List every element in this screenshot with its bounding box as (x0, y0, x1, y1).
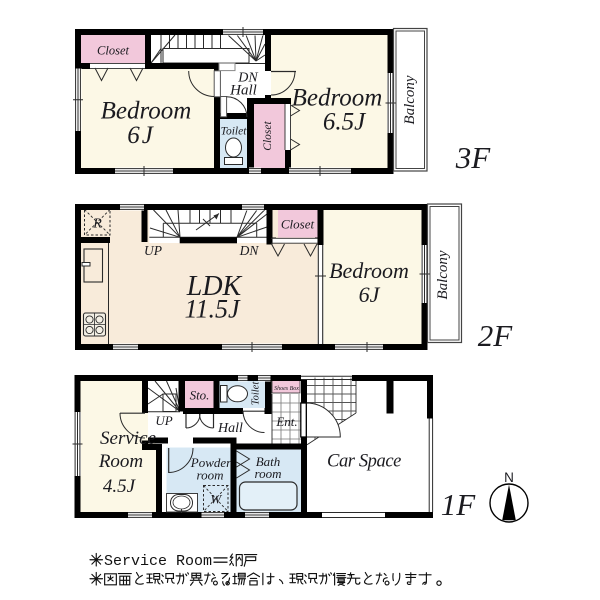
svg-text:2F: 2F (478, 318, 514, 353)
svg-text:3F: 3F (455, 140, 492, 175)
svg-text:Bedroom: Bedroom (292, 85, 383, 112)
svg-text:room: room (255, 466, 282, 481)
svg-text:Toilet: Toilet (251, 381, 262, 406)
svg-text:UP: UP (155, 413, 172, 428)
svg-text:Closet: Closet (97, 44, 129, 58)
svg-text:6J: 6J (359, 282, 381, 307)
svg-text:Hall: Hall (229, 83, 257, 99)
svg-text:Shoes Box: Shoes Box (274, 386, 299, 392)
svg-text:W: W (210, 492, 222, 507)
svg-text:Sto.: Sto. (190, 388, 210, 403)
svg-text:6J: 6J (127, 122, 155, 149)
svg-text:Car Space: Car Space (327, 452, 401, 472)
svg-text:Balcony: Balcony (435, 250, 451, 299)
svg-text:6.5J: 6.5J (323, 109, 367, 136)
svg-text:R: R (92, 217, 102, 232)
svg-text:N: N (504, 470, 514, 485)
svg-text:Bedroom: Bedroom (101, 98, 192, 125)
svg-text:Service: Service (100, 428, 156, 449)
svg-text:Hall: Hall (217, 421, 243, 436)
svg-text:11.5J: 11.5J (184, 295, 241, 324)
svg-text:Balcony: Balcony (402, 75, 418, 124)
svg-text:Closet: Closet (262, 121, 274, 151)
svg-text:4.5J: 4.5J (103, 476, 137, 497)
svg-text:Toilet: Toilet (221, 126, 248, 138)
svg-text:Bedroom: Bedroom (329, 258, 409, 283)
svg-text:Closet: Closet (281, 217, 315, 232)
svg-text:Ent.: Ent. (275, 414, 297, 429)
svg-text:UP: UP (144, 243, 162, 258)
svg-text:1F: 1F (441, 487, 477, 522)
svg-text:Room: Room (98, 451, 143, 472)
svg-text:DN: DN (239, 243, 260, 258)
svg-text:Service Room: Service Room (104, 553, 212, 570)
svg-text:room: room (197, 468, 224, 483)
